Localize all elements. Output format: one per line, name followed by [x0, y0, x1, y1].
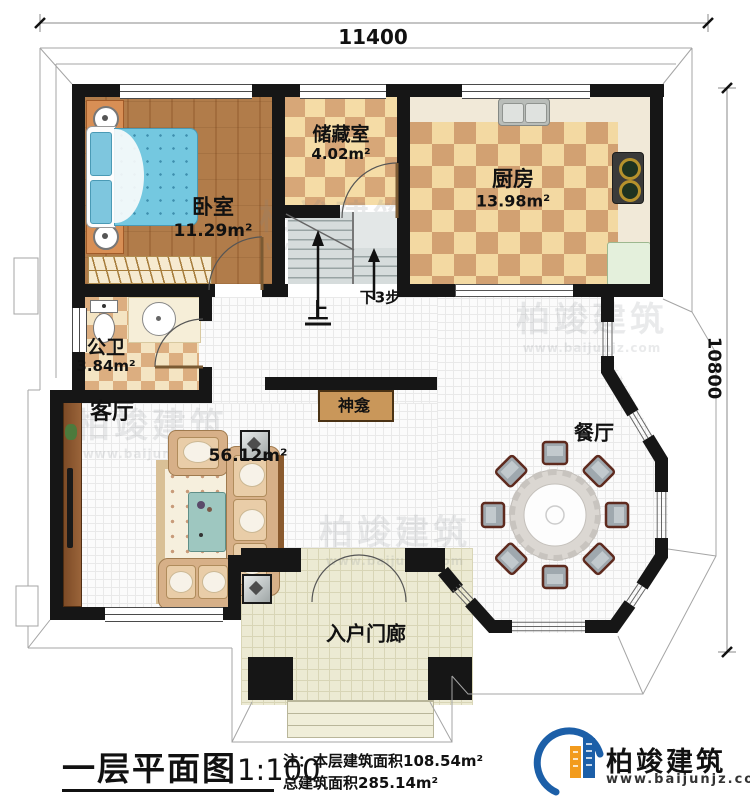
- brand-website: www.baijunjz.com: [606, 772, 750, 787]
- stairs-down-label: 下3步: [360, 287, 400, 308]
- drawing-title: 一层平面图1:100: [62, 742, 321, 790]
- dining-label: 餐厅: [574, 417, 614, 446]
- dining-chair: [482, 503, 504, 527]
- kitchen-area: 13.98m²: [476, 192, 550, 211]
- kitchen-label: 厨房: [492, 163, 534, 193]
- porch-label: 入户门廊: [326, 618, 406, 647]
- drawing-title-text: 一层平面图: [62, 749, 237, 788]
- brand-logo-icon: [537, 731, 600, 792]
- dining-table-set: [482, 442, 628, 588]
- bathroom-label: 公卫: [87, 333, 125, 360]
- storage-area: 4.02m²: [311, 145, 370, 163]
- dimension-top: 11400: [338, 25, 408, 49]
- storage-label: 储藏室: [312, 120, 369, 147]
- stairs-up-label: 上: [308, 295, 329, 325]
- living-label: 客厅: [90, 394, 134, 426]
- title-underline: [62, 789, 274, 792]
- stair-arrows: [286, 214, 380, 324]
- dining-chair: [583, 455, 616, 488]
- dining-chair: [543, 566, 567, 588]
- dining-chair: [543, 442, 567, 464]
- dining-chair: [606, 503, 628, 527]
- floor-plan-canvas: 柏竣建筑www.baijunjz.com 柏竣建筑www.baijunjz.co…: [0, 0, 750, 801]
- living-area: 56.12m²: [209, 446, 288, 466]
- dining-chair: [495, 543, 528, 576]
- dimension-right: 10800: [704, 337, 725, 400]
- bedroom-area: 11.29m²: [174, 221, 253, 241]
- note-line-1: 注：本层建筑面积108.54m²: [283, 750, 483, 771]
- note-line-2: 总建筑面积285.14m²: [283, 772, 438, 793]
- dimension-lines: [35, 14, 736, 657]
- bedroom-label: 卧室: [192, 191, 234, 221]
- bathroom-area: 3.84m²: [76, 357, 135, 375]
- shrine-label: 神龛: [338, 392, 370, 416]
